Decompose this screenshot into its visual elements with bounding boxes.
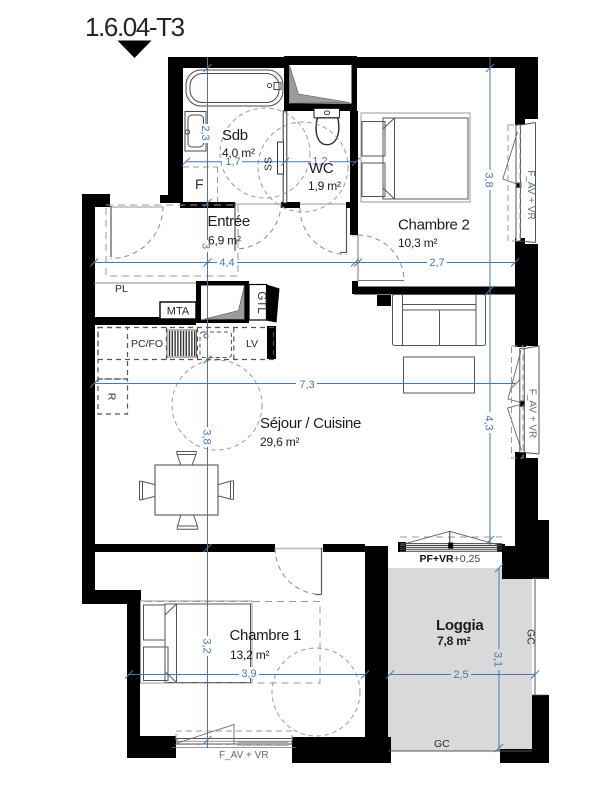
svg-text:LV: LV: [246, 338, 258, 350]
svg-text:Entrée: Entrée: [208, 213, 250, 230]
svg-text:3,8: 3,8: [201, 429, 213, 444]
svg-text:PL: PL: [115, 283, 128, 295]
svg-text:F_AV + VR: F_AV + VR: [527, 389, 538, 439]
svg-text:3,1: 3,1: [492, 652, 504, 667]
svg-text:PF+VR+0,25: PF+VR+0,25: [420, 553, 481, 565]
svg-text:7,8 m²: 7,8 m²: [437, 634, 471, 648]
svg-text:13,2 m²: 13,2 m²: [230, 648, 269, 662]
svg-text:GC: GC: [525, 629, 537, 645]
svg-text:1.6.04-T3: 1.6.04-T3: [85, 12, 185, 42]
svg-text:Séjour / Cuisine: Séjour / Cuisine: [260, 415, 361, 432]
svg-text:F_AV + VR: F_AV + VR: [525, 170, 536, 220]
svg-text:Chambre 1: Chambre 1: [230, 627, 302, 644]
svg-text:6,9 m²: 6,9 m²: [208, 234, 241, 248]
svg-text:MTA: MTA: [167, 306, 190, 318]
svg-text:PC/FO: PC/FO: [131, 338, 163, 350]
svg-text:3,2: 3,2: [201, 638, 213, 653]
svg-text:WC: WC: [309, 160, 334, 177]
svg-text:3,8: 3,8: [483, 172, 495, 187]
svg-text:Sdb: Sdb: [222, 127, 248, 144]
svg-text:29,6 m²: 29,6 m²: [260, 435, 299, 449]
svg-text:GTL: GTL: [255, 291, 267, 314]
svg-text:F: F: [195, 176, 204, 192]
svg-text:GC: GC: [434, 738, 450, 750]
svg-text:3,9: 3,9: [241, 668, 256, 680]
svg-text:F_AV + VR: F_AV + VR: [219, 750, 269, 761]
svg-text:10,3 m²: 10,3 m²: [398, 236, 437, 250]
svg-text:R: R: [106, 393, 118, 401]
svg-text:4,3: 4,3: [483, 415, 495, 430]
svg-text:2,7: 2,7: [429, 257, 444, 269]
svg-text:2,5: 2,5: [453, 669, 468, 681]
svg-text:SS: SS: [263, 157, 275, 171]
svg-text:4,0 m²: 4,0 m²: [222, 146, 255, 160]
svg-text:2,3: 2,3: [199, 125, 211, 140]
svg-text:Chambre 2: Chambre 2: [398, 217, 470, 234]
svg-text:4,4: 4,4: [219, 257, 234, 269]
svg-text:1,9 m²: 1,9 m²: [308, 179, 341, 193]
svg-text:Loggia: Loggia: [436, 617, 484, 634]
svg-text:7,3: 7,3: [299, 379, 314, 391]
